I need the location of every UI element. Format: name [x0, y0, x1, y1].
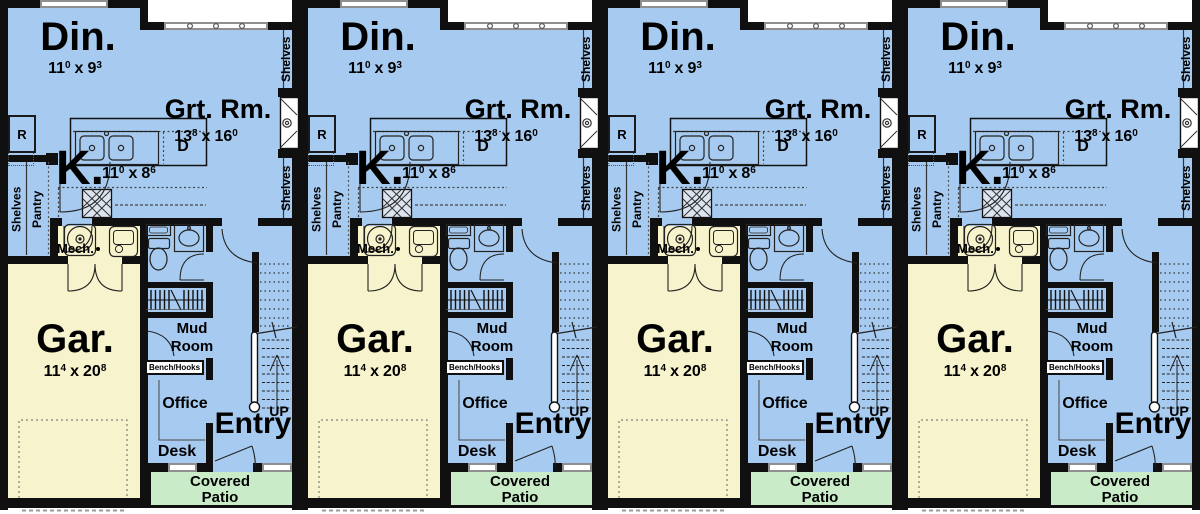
wall: [140, 0, 148, 30]
wall: [558, 218, 592, 226]
stairs-up-label: UP: [562, 404, 596, 419]
mech-garage-door-gap: [368, 256, 422, 264]
mech-label: Mech.: [357, 242, 400, 256]
mech-label: Mech.: [957, 242, 1000, 256]
wall: [122, 256, 148, 264]
stair-wall: [852, 252, 859, 332]
closet-wall: [740, 282, 806, 288]
refrigerator: R: [308, 115, 336, 153]
entry-window: [562, 463, 592, 472]
refrigerator-label: R: [17, 127, 26, 142]
unit-1: R: [0, 0, 300, 514]
great-room-shelves-top-label: Shelves: [1179, 31, 1193, 88]
dining-window: [340, 0, 408, 8]
great-room-shelves-bottom-label: Shelves: [279, 159, 293, 218]
great-room-shelves-bottom-label: Shelves: [579, 159, 593, 218]
pantry-label: Pantry: [927, 162, 947, 256]
kitchen-dimensions: 110x86: [1002, 166, 1056, 183]
wall: [722, 256, 748, 264]
great-room-dimensions: 138x160: [746, 129, 866, 146]
covered-patio-label: Covered Patio: [460, 474, 580, 506]
pantry-shelves-label: Shelves: [607, 162, 626, 256]
mech-label: Mech.: [657, 242, 700, 256]
kitchen-label: K.: [956, 144, 1004, 195]
kitchen-label: K.: [356, 144, 404, 195]
label-dot: [996, 247, 1000, 251]
wall: [1106, 282, 1113, 318]
wall: [1040, 0, 1048, 30]
great-room-shelves-top-label: Shelves: [579, 31, 593, 88]
wall: [506, 358, 513, 380]
garage-floor: [8, 264, 140, 498]
dishwasher-label: D: [466, 139, 500, 156]
garage-dimensions: 114x208: [315, 364, 435, 381]
kitchen-dimensions: 110x86: [402, 166, 456, 183]
great-room-window: [464, 22, 568, 30]
pantry-label: Pantry: [27, 162, 47, 256]
wall: [258, 218, 292, 226]
exterior-notch: [148, 0, 292, 22]
wall: [748, 463, 768, 472]
pantry-label: Pantry: [327, 162, 347, 256]
wall: [900, 498, 1048, 508]
wall: [806, 282, 813, 318]
refrigerator-label: R: [917, 127, 926, 142]
stair-wall: [1152, 252, 1159, 332]
wall: [1097, 463, 1113, 472]
label-dot: [696, 247, 700, 251]
dining-label: Din.: [18, 16, 138, 58]
wall: [1048, 463, 1068, 472]
great-room-label: Grt. Rm.: [145, 95, 291, 124]
kitchen-label: K.: [656, 144, 704, 195]
garage-floor: [308, 264, 440, 498]
wall: [1106, 358, 1113, 380]
dishwasher-label: D: [766, 139, 800, 156]
refrigerator-label: R: [617, 127, 626, 142]
desk-label: Desk: [1048, 444, 1106, 461]
bench-hooks-box: Bench/Hooks: [1045, 360, 1104, 375]
kitchen-dimensions: 110x86: [702, 166, 756, 183]
dishwasher-label: D: [1066, 139, 1100, 156]
great-room-label: Grt. Rm.: [445, 95, 591, 124]
wall: [422, 256, 448, 264]
exterior-notch: [748, 0, 892, 22]
mud-room-label: Mud Room: [149, 320, 235, 356]
wall: [206, 218, 213, 252]
dining-dimensions: 110x93: [918, 61, 1032, 78]
office-window: [468, 463, 497, 472]
covered-patio-label: Covered Patio: [1060, 474, 1180, 506]
wall: [1158, 218, 1192, 226]
pantry-shelves-label: Shelves: [7, 162, 26, 256]
wall: [806, 358, 813, 380]
wall: [1153, 463, 1162, 472]
dining-window: [40, 0, 108, 8]
dishwasher-label: D: [166, 139, 200, 156]
wall: [806, 218, 813, 252]
mech-garage-door-gap: [68, 256, 122, 264]
label-dot: [396, 247, 400, 251]
pantry-label: Pantry: [627, 162, 647, 256]
desk-label: Desk: [748, 444, 806, 461]
bench-hooks-box: Bench/Hooks: [745, 360, 804, 375]
dining-label: Din.: [918, 16, 1038, 58]
pantry-shelves-label: Shelves: [907, 162, 926, 256]
refrigerator: R: [608, 115, 636, 153]
garage-floor: [608, 264, 740, 498]
wall: [392, 218, 522, 226]
wall: [253, 463, 262, 472]
mech-garage-door-gap: [668, 256, 722, 264]
wall: [992, 218, 1122, 226]
garage-dimensions: 114x208: [915, 364, 1035, 381]
bench-hooks-box: Bench/Hooks: [445, 360, 504, 375]
wall: [206, 282, 213, 318]
wall: [900, 256, 968, 264]
great-room-window: [764, 22, 868, 30]
great-room-shelves-bottom-label: Shelves: [1179, 159, 1193, 218]
closet-wall: [740, 312, 806, 318]
exterior-notch: [448, 0, 592, 22]
fireplace-wall: [278, 149, 300, 158]
desk-label: Desk: [448, 444, 506, 461]
dining-label: Din.: [318, 16, 438, 58]
covered-patio-label: Covered Patio: [760, 474, 880, 506]
label-dot: [96, 247, 100, 251]
closet-wall: [140, 312, 206, 318]
dining-label: Din.: [618, 16, 738, 58]
dining-dimensions: 110x93: [618, 61, 732, 78]
wall: [506, 218, 513, 252]
great-room-dimensions: 138x160: [1046, 129, 1166, 146]
wall: [197, 463, 213, 472]
dining-dimensions: 110x93: [318, 61, 432, 78]
closet-wall: [440, 282, 506, 288]
wall: [1022, 256, 1048, 264]
wall: [1106, 218, 1113, 252]
great-room-dimensions: 138x160: [446, 129, 566, 146]
refrigerator-label: R: [317, 127, 326, 142]
great-room-shelves-top-label: Shelves: [879, 31, 893, 88]
great-room-shelves-top-label: Shelves: [279, 31, 293, 88]
wall: [440, 0, 448, 30]
wall: [300, 498, 448, 508]
great-room-window: [164, 22, 268, 30]
wall: [692, 218, 822, 226]
unit-3: R: [600, 0, 900, 514]
unit-2: R: [300, 0, 600, 514]
unit-4: R: [900, 0, 1200, 514]
dining-window: [940, 0, 1008, 8]
kitchen-label: K.: [56, 144, 104, 195]
great-room-window: [1064, 22, 1168, 30]
stairs-up-label: UP: [262, 404, 296, 419]
wall: [506, 282, 513, 318]
great-room-shelves-bottom-label: Shelves: [879, 159, 893, 218]
wall: [300, 256, 368, 264]
wall: [92, 218, 222, 226]
stairs-up-label: UP: [1162, 404, 1196, 419]
garage-label: Gar.: [315, 318, 435, 360]
fireplace-wall: [578, 149, 600, 158]
closet-wall: [1040, 282, 1106, 288]
desk-label: Desk: [148, 444, 206, 461]
entry-window: [1162, 463, 1192, 472]
exterior-notch: [1048, 0, 1192, 22]
mud-room-label: Mud Room: [749, 320, 835, 356]
wall: [553, 463, 562, 472]
covered-patio-label: Covered Patio: [160, 474, 280, 506]
mech-label: Mech.: [57, 242, 100, 256]
wall: [206, 358, 213, 380]
office-window: [1068, 463, 1097, 472]
entry-window: [262, 463, 292, 472]
wall: [600, 256, 668, 264]
wall: [0, 498, 148, 508]
bench-hooks-box: Bench/Hooks: [145, 360, 204, 375]
closet-wall: [1040, 312, 1106, 318]
garage-label: Gar.: [915, 318, 1035, 360]
office-window: [168, 463, 197, 472]
pantry-shelves-label: Shelves: [307, 162, 326, 256]
great-room-dimensions: 138x160: [146, 129, 266, 146]
stair-wall: [552, 252, 559, 332]
dining-dimensions: 110x93: [18, 61, 132, 78]
dining-window: [640, 0, 708, 8]
fireplace-wall: [878, 149, 900, 158]
wall: [497, 463, 513, 472]
office-window: [768, 463, 797, 472]
closet-wall: [140, 282, 206, 288]
mech-garage-door-gap: [968, 256, 1022, 264]
closet-wall: [440, 312, 506, 318]
wall: [797, 463, 813, 472]
great-room-label: Grt. Rm.: [1045, 95, 1191, 124]
stair-wall: [252, 252, 259, 332]
wall: [448, 463, 468, 472]
wall: [740, 0, 748, 30]
garage-dimensions: 114x208: [15, 364, 135, 381]
mud-room-label: Mud Room: [449, 320, 535, 356]
mud-room-label: Mud Room: [1049, 320, 1135, 356]
wall: [148, 463, 168, 472]
wall: [858, 218, 892, 226]
wall: [853, 463, 862, 472]
refrigerator: R: [8, 115, 36, 153]
garage-floor: [908, 264, 1040, 498]
garage-label: Gar.: [615, 318, 735, 360]
garage-label: Gar.: [15, 318, 135, 360]
wall: [600, 498, 748, 508]
floorplan-canvas: © R: [0, 0, 1200, 514]
fireplace-wall: [1178, 149, 1200, 158]
entry-window: [862, 463, 892, 472]
wall: [0, 256, 68, 264]
garage-dimensions: 114x208: [615, 364, 735, 381]
stairs-up-label: UP: [862, 404, 896, 419]
refrigerator: R: [908, 115, 936, 153]
great-room-label: Grt. Rm.: [745, 95, 891, 124]
kitchen-dimensions: 110x86: [102, 166, 156, 183]
